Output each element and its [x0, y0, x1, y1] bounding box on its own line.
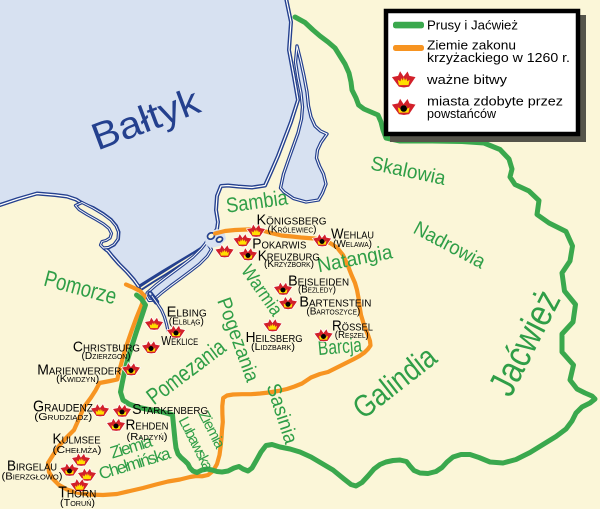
svg-text:(Welawa): (Welawa): [333, 238, 372, 250]
svg-text:ważne bitwy: ważne bitwy: [426, 72, 508, 87]
svg-text:(Chełmża): (Chełmża): [53, 444, 102, 456]
svg-text:(Kwidzyn): (Kwidzyn): [56, 373, 99, 385]
svg-text:(Krzyżbork): (Krzyżbork): [264, 258, 314, 270]
svg-text:(Radzyń): (Radzyń): [127, 431, 168, 443]
svg-text:(Grudziądz): (Grudziądz): [34, 411, 92, 423]
svg-text:(Królewiec): (Królewiec): [268, 223, 317, 235]
svg-text:powstańców: powstańców: [427, 106, 497, 121]
svg-text:(Reszel): (Reszel): [335, 329, 369, 341]
svg-text:(Bartoszyce): (Bartoszyce): [306, 306, 360, 318]
svg-text:(Dzierzgon): (Dzierzgon): [82, 350, 131, 362]
svg-text:(Lidzbark): (Lidzbark): [251, 341, 295, 353]
svg-text:Starkenberg: Starkenberg: [132, 402, 208, 418]
svg-text:krzyżackiego w 1260 r.: krzyżackiego w 1260 r.: [427, 50, 570, 65]
svg-text:(Toruń): (Toruń): [60, 497, 95, 509]
svg-text:(Bierzgłowo): (Bierzgłowo): [2, 471, 63, 483]
svg-text:Weklice: Weklice: [161, 334, 198, 348]
svg-text:Prusy i Jaćwież: Prusy i Jaćwież: [427, 18, 518, 33]
